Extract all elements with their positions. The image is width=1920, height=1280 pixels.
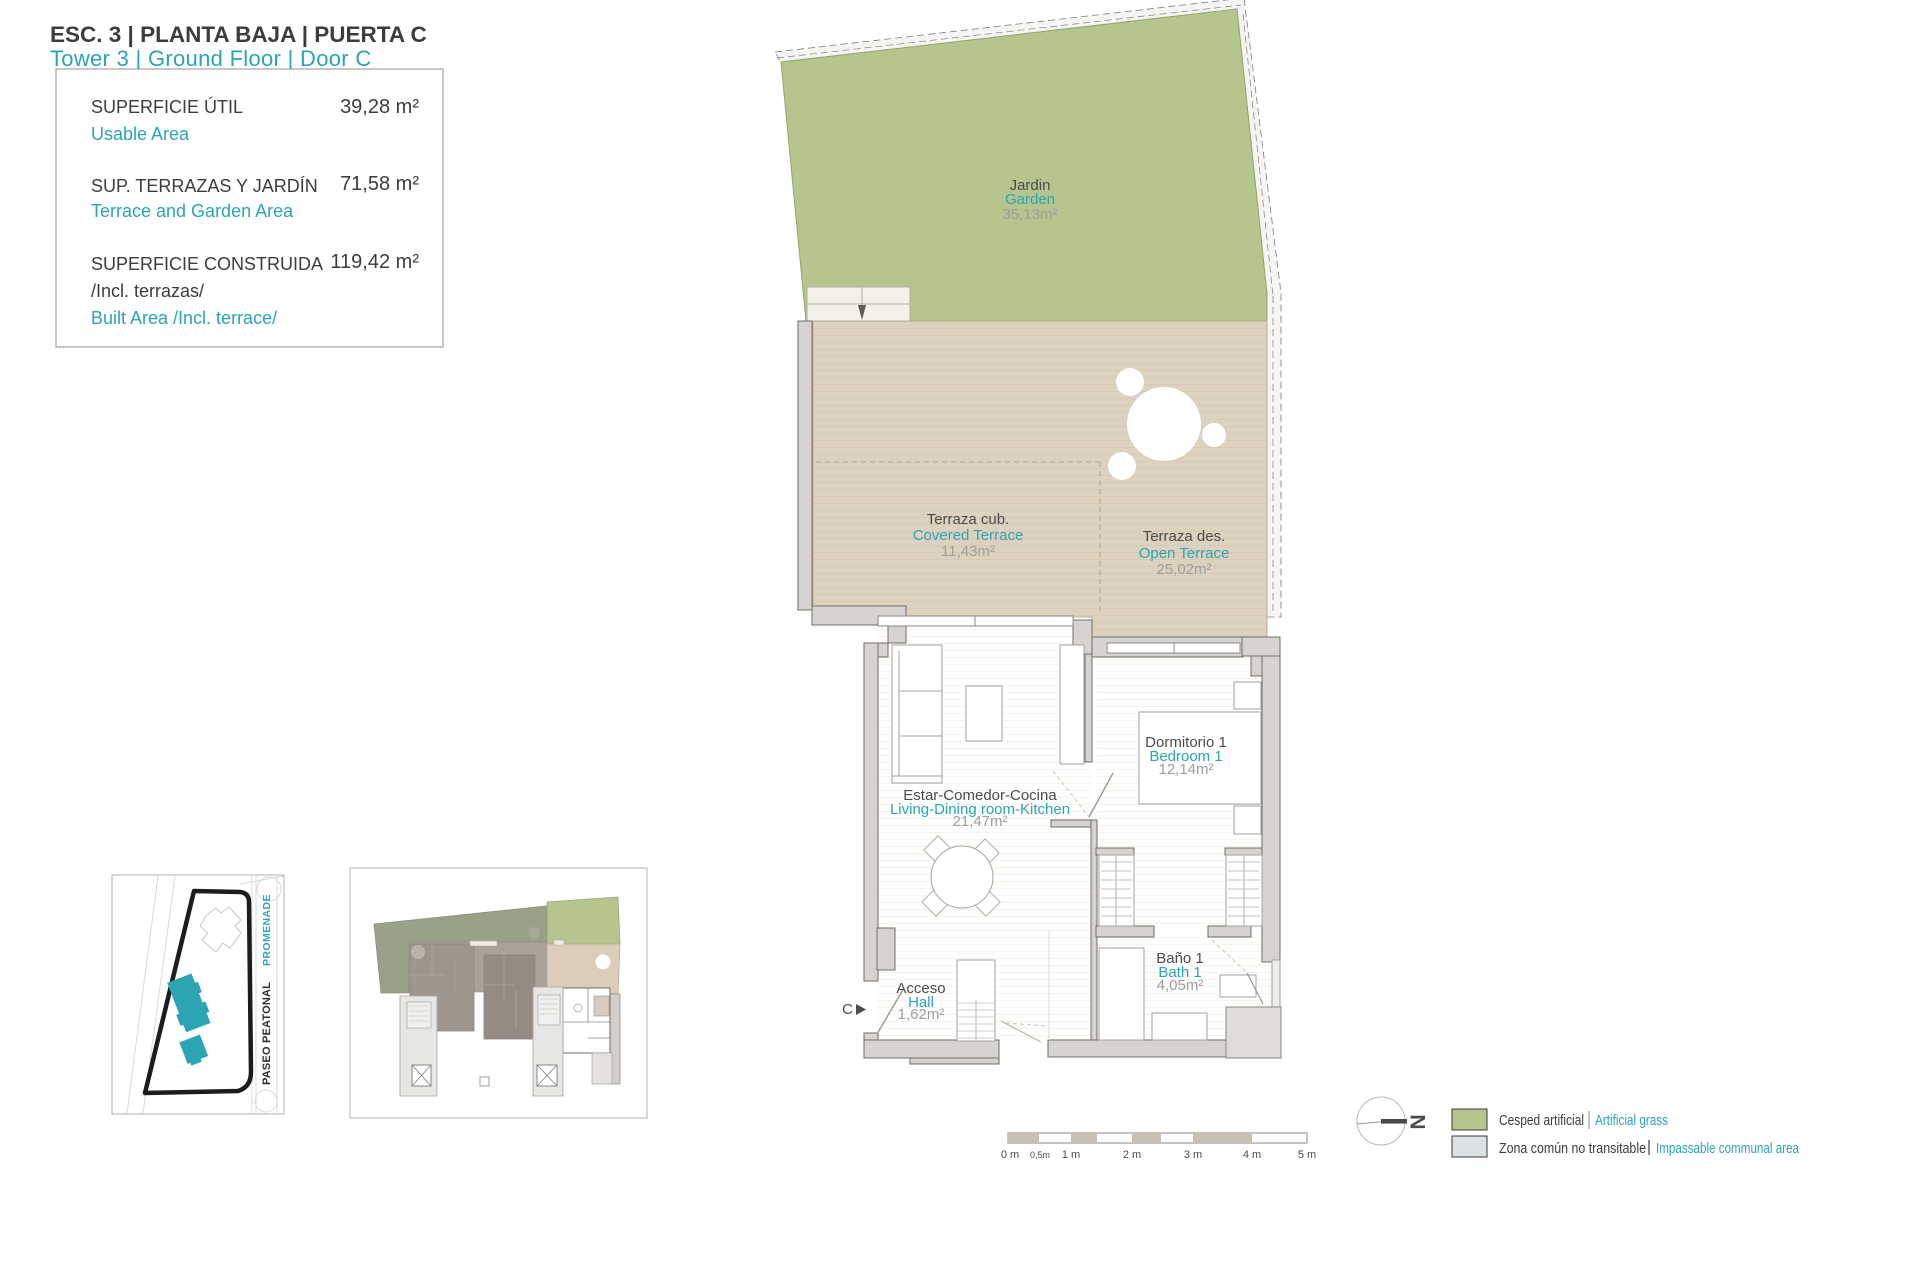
svg-text:2 m: 2 m (1123, 1149, 1141, 1161)
svg-text:Zona común no transitable: Zona común no transitable (1499, 1140, 1646, 1157)
svg-text:39,28 m²: 39,28 m² (340, 96, 419, 118)
svg-text:0,5m: 0,5m (1030, 1150, 1050, 1160)
svg-text:119,42 m²: 119,42 m² (330, 251, 419, 273)
svg-text:Built Area /Incl. terrace/: Built Area /Incl. terrace/ (91, 308, 277, 328)
svg-text:SUPERFICIE ÚTIL: SUPERFICIE ÚTIL (91, 96, 243, 117)
svg-text:35,13m²: 35,13m² (1002, 206, 1057, 223)
svg-text:21,47m²: 21,47m² (952, 813, 1007, 830)
svg-text:3 m: 3 m (1184, 1149, 1202, 1161)
svg-text:Impassable communal area: Impassable communal area (1656, 1140, 1800, 1157)
svg-text:12,14m²: 12,14m² (1158, 761, 1213, 778)
svg-text:Terraza des.: Terraza des. (1143, 528, 1226, 545)
svg-text:4 m: 4 m (1243, 1149, 1261, 1161)
svg-text:SUP. TERRAZAS Y JARDÍN: SUP. TERRAZAS Y JARDÍN (91, 176, 318, 196)
svg-text:5 m: 5 m (1298, 1149, 1316, 1161)
svg-text:Tower 3 | Ground Floor | Door: Tower 3 | Ground Floor | Door C (50, 46, 372, 71)
svg-text:11,43m²: 11,43m² (941, 543, 995, 560)
svg-text:ESC. 3 | PLANTA BAJA | PUERTA: ESC. 3 | PLANTA BAJA | PUERTA C (50, 22, 427, 47)
svg-text:Cesped artificial: Cesped artificial (1499, 1112, 1584, 1129)
svg-text:PROMENADE: PROMENADE (261, 894, 273, 966)
svg-text:N: N (1406, 1114, 1429, 1129)
svg-text:71,58 m²: 71,58 m² (340, 173, 419, 195)
svg-text:Artificial grass: Artificial grass (1595, 1112, 1668, 1129)
svg-text:1 m: 1 m (1062, 1149, 1080, 1161)
svg-text:C: C (842, 1001, 853, 1018)
svg-text:25,02m²: 25,02m² (1156, 561, 1211, 578)
svg-text:Terrace and Garden Area: Terrace and Garden Area (91, 201, 294, 221)
svg-text:Terraza cub.: Terraza cub. (927, 511, 1010, 528)
svg-text:4,05m²: 4,05m² (1157, 977, 1204, 994)
svg-text:/Incl. terrazas/: /Incl. terrazas/ (91, 281, 204, 301)
svg-text:SUPERFICIE CONSTRUIDA: SUPERFICIE CONSTRUIDA (91, 254, 323, 274)
svg-text:Covered Terrace: Covered Terrace (913, 527, 1024, 544)
svg-text:Usable Area: Usable Area (91, 124, 190, 144)
svg-text:Open Terrace: Open Terrace (1139, 545, 1230, 562)
svg-text:0 m: 0 m (1001, 1149, 1019, 1161)
svg-text:1,62m²: 1,62m² (898, 1006, 945, 1023)
svg-text:PASEO PEATONAL: PASEO PEATONAL (261, 982, 273, 1085)
